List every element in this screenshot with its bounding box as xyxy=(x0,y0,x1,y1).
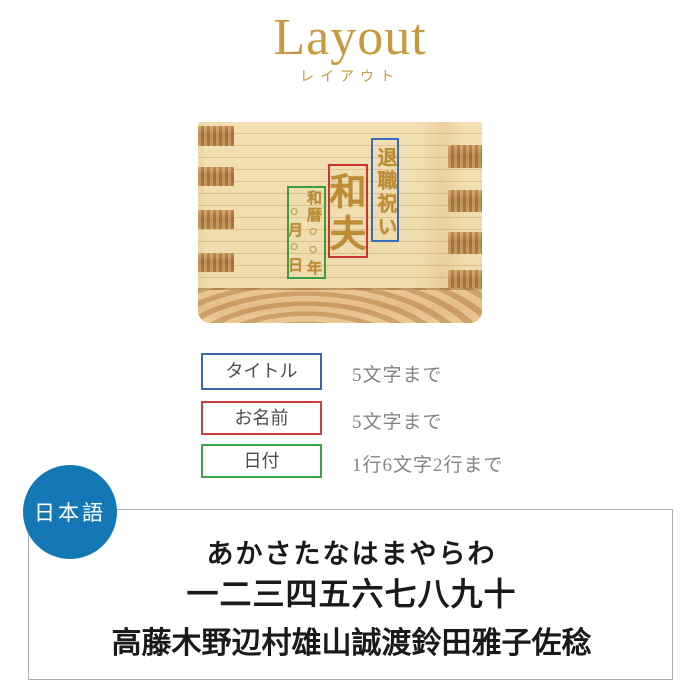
finger-joint xyxy=(448,232,482,254)
finger-joint xyxy=(198,210,234,229)
legend-label-date: 日付 xyxy=(201,444,322,478)
sample-line-numerals: 一二三四五六七八九十 xyxy=(29,569,674,615)
finger-joint xyxy=(198,253,234,272)
name-highlight-rect xyxy=(328,164,368,258)
finger-joint xyxy=(448,145,482,168)
wood-grain-bottom-band xyxy=(198,288,482,323)
title-highlight-rect xyxy=(371,138,399,242)
sample-line-kanji-names: 高藤木野辺村雄山誠渡鈴田雅子佐稔 xyxy=(29,618,674,662)
finger-joint xyxy=(198,126,234,146)
legend-limit-name: 5文字まで xyxy=(352,407,443,434)
product-photo: 退職祝い 和夫 和暦○○年 ○月○日 xyxy=(198,122,482,323)
finger-joint xyxy=(448,190,482,212)
sample-line-hiragana: あかさたなはまやらわ xyxy=(29,532,674,571)
legend-limit-title: 5文字まで xyxy=(352,360,443,387)
wooden-masu-box: 退職祝い 和夫 和暦○○年 ○月○日 xyxy=(198,122,482,323)
legend-label-name: お名前 xyxy=(201,401,322,435)
font-sample-box: あかさたなはまやらわ 一二三四五六七八九十 高藤木野辺村雄山誠渡鈴田雅子佐稔 xyxy=(28,509,673,680)
page-subtitle: レイアウト xyxy=(0,66,700,86)
language-badge: 日本語 xyxy=(23,465,117,559)
legend-label-title: タイトル xyxy=(201,353,322,390)
legend-limit-date: 1行6文字2行まで xyxy=(352,450,504,477)
page-title: Layout xyxy=(0,8,700,67)
date-highlight-rect xyxy=(287,186,326,279)
finger-joint xyxy=(198,167,234,186)
